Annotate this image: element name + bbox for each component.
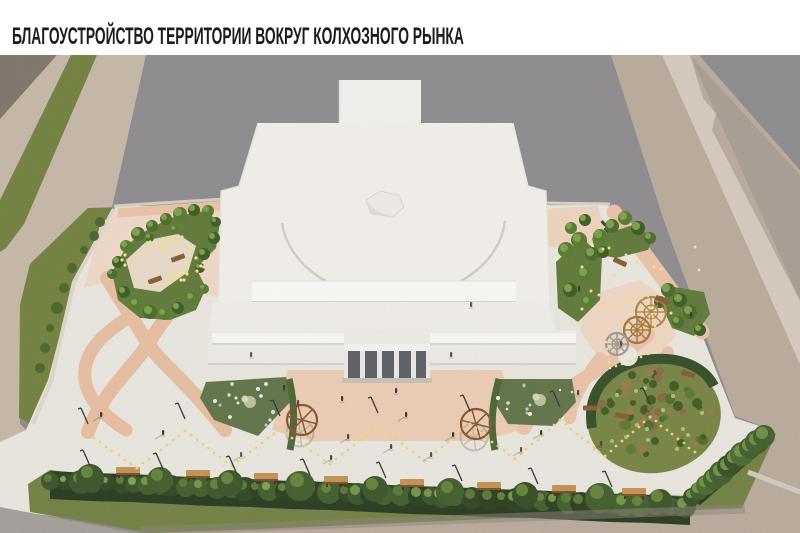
svg-text:БЛАГОУСТРОЙСТВО ТЕРРИТОРИИ ВОК: БЛАГОУСТРОЙСТВО ТЕРРИТОРИИ ВОКРУГ КОЛХОЗ… — [12, 21, 464, 50]
